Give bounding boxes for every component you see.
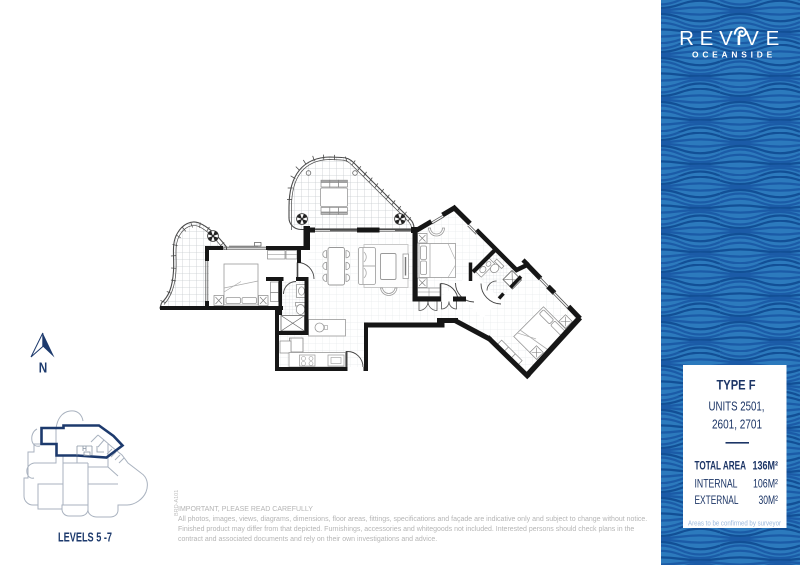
svg-text:V: V xyxy=(745,27,759,50)
svg-text:30M²: 30M² xyxy=(759,493,779,507)
svg-text:OCEANSIDE: OCEANSIDE xyxy=(692,50,776,60)
svg-text:Areas to be confirmed by surve: Areas to be confirmed by surveyor xyxy=(688,521,782,528)
svg-text:contract and associated docume: contract and associated documents and re… xyxy=(178,536,437,543)
svg-text:UNITS 2501,: UNITS 2501, xyxy=(709,400,765,414)
svg-text:LEVELS 5 -7: LEVELS 5 -7 xyxy=(58,530,112,545)
svg-text:V: V xyxy=(719,27,733,50)
svg-text:N: N xyxy=(39,361,48,377)
svg-text:TYPE F: TYPE F xyxy=(717,378,756,393)
svg-text:106M²: 106M² xyxy=(753,477,778,491)
svg-text:136M²: 136M² xyxy=(753,459,779,473)
svg-text:E: E xyxy=(700,27,714,50)
svg-text:R: R xyxy=(679,27,694,50)
svg-text:All photos, images, views, dia: All photos, images, views, diagrams, dim… xyxy=(178,516,647,523)
svg-text:Finished product may differ fr: Finished product may differ from that de… xyxy=(178,526,634,533)
svg-text:INTERNAL: INTERNAL xyxy=(695,477,738,491)
svg-text:2601, 2701: 2601, 2701 xyxy=(712,418,762,432)
svg-text:E: E xyxy=(766,27,780,50)
svg-text:IMPORTANT, PLEASE READ CAREFUL: IMPORTANT, PLEASE READ CAREFULLY xyxy=(178,506,313,513)
svg-text:TOTAL AREA: TOTAL AREA xyxy=(695,459,747,473)
svg-text:EXTERNAL: EXTERNAL xyxy=(695,493,739,507)
